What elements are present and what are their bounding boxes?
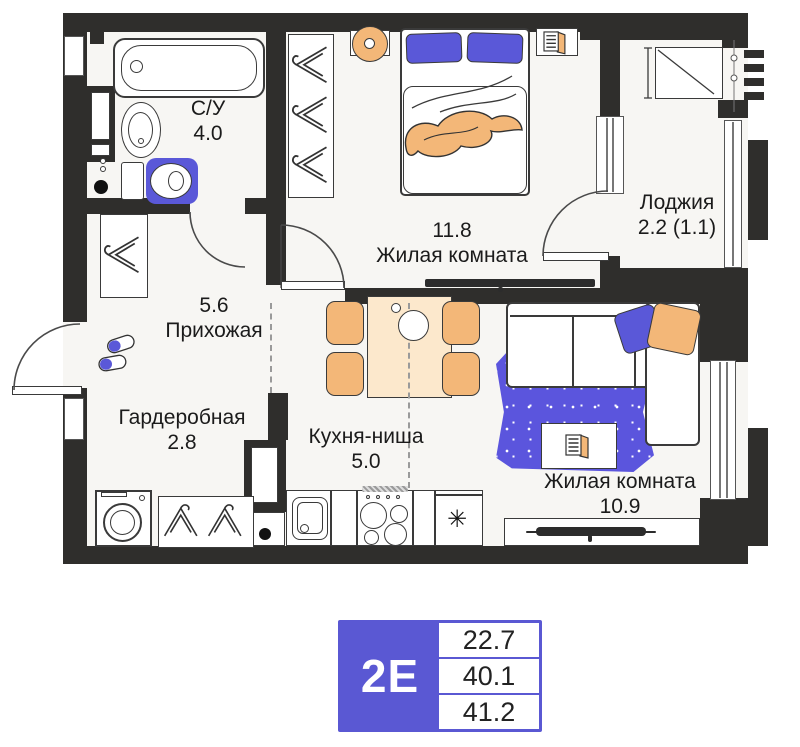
valve (100, 158, 106, 164)
unit-legend-badge: 2Е 22.7 40.1 41.2 (338, 620, 542, 732)
toilet-bowl-inner (168, 171, 184, 191)
window-line (606, 118, 608, 192)
wall (600, 32, 620, 116)
hood-vent (362, 486, 408, 492)
loggia-casement (655, 47, 723, 99)
wall (700, 498, 748, 546)
washer-knob (139, 495, 145, 501)
sofa-cushion-line (572, 316, 574, 386)
fridge-line (436, 494, 482, 496)
washer-panel (101, 492, 127, 497)
pillow (646, 302, 703, 357)
stove-knob (366, 495, 370, 499)
stove-knob (376, 495, 380, 499)
coffee-table (541, 423, 617, 469)
room-name: Жилая комната (376, 243, 528, 268)
bedroom-door-leaf (281, 281, 345, 290)
wall (722, 32, 748, 48)
burner (364, 530, 379, 545)
counter-divider (434, 490, 436, 546)
wall (266, 32, 286, 200)
window-line (732, 122, 734, 266)
entrance-door-leaf (12, 386, 82, 395)
bathtub-drain (130, 60, 143, 73)
ac-slat (744, 78, 764, 86)
pillow (405, 32, 462, 64)
dresser (536, 28, 578, 56)
bed-duvet (403, 86, 527, 194)
room-label-bathroom: С/У 4.0 (191, 96, 225, 146)
shaft-inner (91, 144, 110, 156)
stove-knob (396, 495, 400, 499)
drain-dot (259, 528, 271, 540)
room-area: 2.8 (118, 430, 245, 455)
unit-type: 2Е (341, 623, 439, 729)
balcony-door-leaf (543, 252, 609, 261)
room-area: 11.8 (376, 218, 528, 243)
tv-stand (588, 535, 592, 542)
plate (398, 310, 429, 341)
wall (63, 546, 748, 564)
wardrobe-cabinet (288, 34, 334, 198)
wall (700, 304, 748, 362)
room-area: 5.6 (165, 293, 262, 318)
stool-center (364, 38, 375, 49)
washer-drum-inner (110, 510, 135, 535)
room-area: 2.2 (1.1) (638, 215, 716, 240)
burner (384, 523, 407, 546)
hall-closet (100, 214, 148, 298)
ac-slat (744, 92, 764, 100)
room-label-hallway: 5.6 Прихожая (165, 293, 262, 343)
wall (90, 32, 104, 44)
apartment-area-value: 40.1 (439, 657, 539, 693)
wall (266, 198, 286, 285)
chair (326, 301, 364, 345)
room-name: Кухня-ниша (308, 424, 423, 449)
adjacent-wall-block (748, 428, 768, 546)
room-name: С/У (191, 96, 225, 121)
stove-knob (386, 495, 390, 499)
window (64, 398, 84, 440)
snowflake-icon: ✳ (447, 505, 467, 534)
chair (442, 301, 480, 345)
burner (360, 502, 387, 529)
window-line (719, 362, 721, 498)
counter-divider (330, 490, 332, 546)
room-label-living-room: Жилая комната 10.9 (544, 469, 696, 519)
window-line (612, 118, 614, 192)
window (64, 36, 84, 76)
room-label-kitchen: Кухня-ниша 5.0 (308, 424, 423, 474)
chair (442, 352, 480, 396)
window (596, 116, 624, 194)
chair (326, 352, 364, 396)
room-name: Лоджия (638, 190, 716, 215)
tv (425, 279, 595, 287)
room-area: 4.0 (191, 121, 225, 146)
shaft-inner (91, 92, 110, 140)
window-line (726, 362, 728, 498)
room-label-bedroom: 11.8 Жилая комната (376, 218, 528, 268)
toilet-tank (121, 162, 144, 200)
room-name: Прихожая (165, 318, 262, 343)
sink-drain (138, 138, 144, 144)
window (710, 360, 736, 500)
valve (100, 166, 106, 172)
wall (268, 393, 288, 440)
wall (718, 100, 748, 118)
room-label-loggia: Лоджия 2.2 (1.1) (638, 190, 716, 240)
counter-divider (412, 490, 414, 546)
floor-plan-page: ✳ (0, 0, 800, 747)
total-area-value: 41.2 (439, 693, 539, 729)
counter-divider (356, 490, 358, 546)
tv-stand (498, 287, 503, 292)
zone-boundary-dashed (270, 303, 272, 393)
wall (600, 268, 748, 304)
pillow (466, 32, 523, 64)
room-name: Гардеробная (118, 405, 245, 430)
burner (390, 505, 408, 523)
sink-drain (300, 524, 309, 533)
riser-dot (94, 180, 108, 194)
ac-slat (744, 64, 764, 72)
shaft-inner (251, 447, 278, 503)
living-area-value: 22.7 (439, 623, 539, 657)
adjacent-wall-block (748, 140, 768, 240)
room-label-wardrobe: Гардеробная 2.8 (118, 405, 245, 455)
cup (391, 303, 401, 313)
ac-slat (744, 50, 764, 58)
room-area: 5.0 (308, 449, 423, 474)
room-name: Жилая комната (544, 469, 696, 494)
wardrobe-closet (158, 496, 254, 548)
room-area: 10.9 (544, 494, 696, 519)
unit-areas: 22.7 40.1 41.2 (439, 623, 539, 729)
